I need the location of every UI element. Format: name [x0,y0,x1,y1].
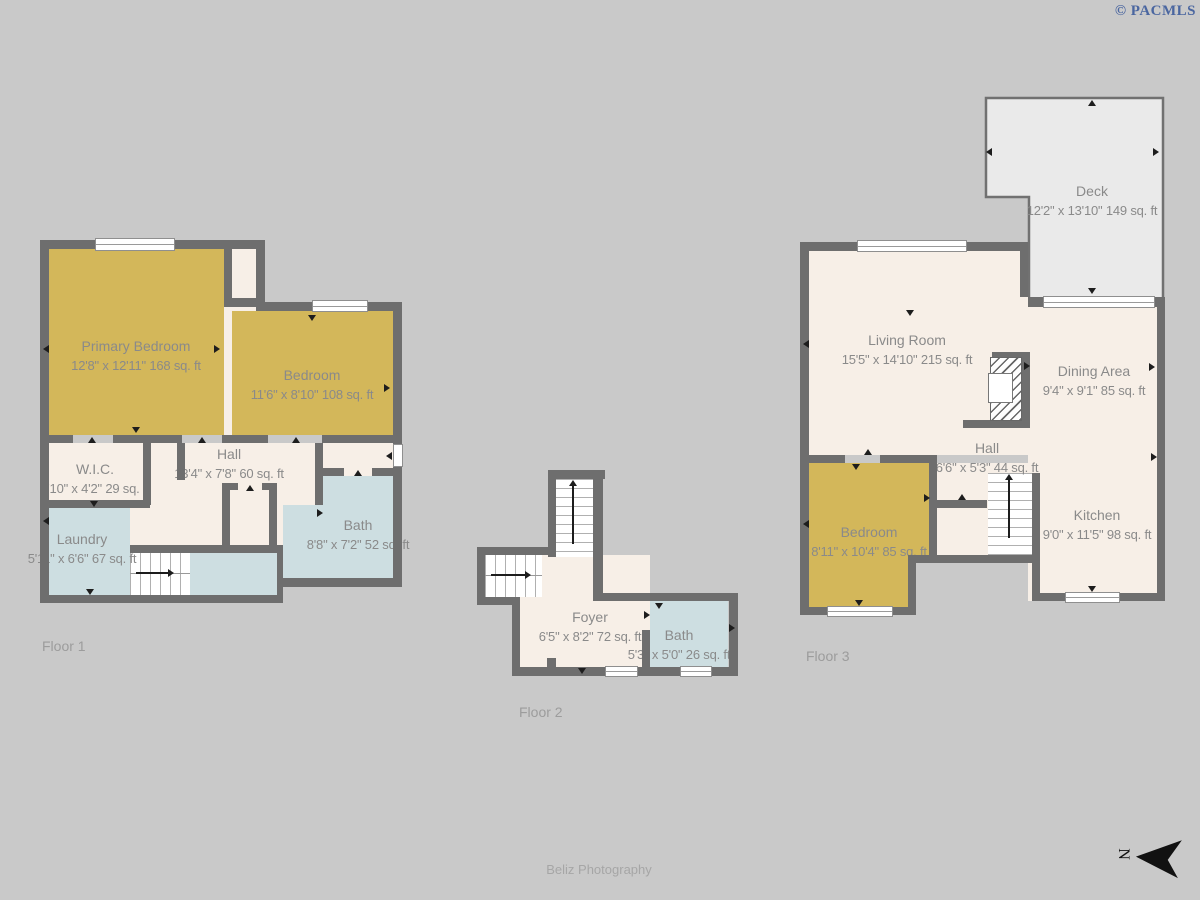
wall [177,443,185,480]
door-tick-icon [1088,100,1096,106]
door-tick-icon [1151,453,1157,461]
wall [372,468,402,476]
wall [222,487,230,552]
wall [937,500,987,508]
room-label: Dining Area 9'4" x 9'1" 85 sq. ft [1043,362,1146,400]
door-opening [393,444,403,467]
door-tick-icon [132,427,140,433]
door-tick-icon [198,437,206,443]
door-tick-icon [308,315,316,321]
door-tick-icon [729,624,735,632]
door-tick-icon [1149,363,1155,371]
room-label: Living Room 15'5" x 14'10" 215 sq. ft [842,331,973,369]
wall [143,443,151,505]
wall [222,435,268,443]
room-label: Foyer 6'5" x 8'2" 72 sq. ft [539,608,642,646]
wall [393,467,402,587]
door-tick-icon [86,589,94,595]
wall [277,553,283,595]
door-tick-icon [292,437,300,443]
door-tick-icon [803,520,809,528]
window [95,238,175,251]
stairs-arrow-head-icon [525,571,531,579]
room-dims: 11'6" x 8'10" 108 sq. ft [251,386,374,404]
wall [929,455,937,563]
wall [593,470,603,601]
room-name: Deck [1027,182,1158,202]
wall [800,242,809,615]
wall [729,593,738,676]
wall [40,595,283,603]
stairs-direction-arrow [572,486,574,544]
window [857,240,967,252]
door-tick-icon [1024,362,1030,370]
wall [322,468,344,476]
window [1065,592,1120,603]
stairs-direction-arrow [136,572,170,574]
door-tick-icon [386,452,392,460]
door-tick-icon [803,340,809,348]
room-label: Hall 13'4" x 7'8" 60 sq. ft [174,445,284,483]
window [827,606,893,617]
door-tick-icon [354,470,362,476]
door-tick-icon [644,611,650,619]
room-dims: 6'10" x 4'2" 29 sq. ft [40,480,150,498]
wall [800,455,845,463]
floor2-label: Floor 2 [519,704,563,720]
room-dims: 9'0" x 11'5" 98 sq. ft [1043,526,1152,544]
window [605,666,638,677]
wall [1020,251,1028,297]
north-arrow-icon [1132,834,1186,881]
door-tick-icon [864,449,872,455]
door-tick-icon [1088,288,1096,294]
door-tick-icon [90,501,98,507]
window [680,666,712,677]
room-name: Bedroom [811,523,927,543]
sliding-door [1043,296,1155,308]
door-tick-icon [88,437,96,443]
room-label: Bedroom 11'6" x 8'10" 108 sq. ft [251,366,374,404]
wall [277,578,402,587]
room-label: Kitchen 9'0" x 11'5" 98 sq. ft [1043,506,1152,544]
stairs [485,555,542,597]
stairs-arrow-head-icon [1005,474,1013,480]
room-label: W.I.C. 6'10" x 4'2" 29 sq. ft [40,460,150,498]
stairs-direction-arrow [1008,480,1010,538]
room-name: Foyer [539,608,642,628]
room-name: Primary Bedroom [71,337,201,357]
door-tick-icon [317,509,323,517]
wall [908,555,1040,563]
bath-area [323,476,393,505]
wall [113,435,182,443]
wall [40,435,73,443]
room-label: Hall 6'6" x 5'3" 44 sq. ft [936,439,1039,477]
wall [1157,307,1165,601]
photographer-credit: Beliz Photography [546,862,652,877]
wall [40,240,49,603]
stairs-direction-arrow [491,574,527,576]
floor1-label: Floor 1 [42,638,86,654]
room-name: W.I.C. [40,460,150,480]
door-tick-icon [855,600,863,606]
wall [603,593,737,601]
wall [512,597,520,676]
room-name: Hall [174,445,284,465]
room-dims: 6'5" x 8'2" 72 sq. ft [539,628,642,646]
door-tick-icon [655,603,663,609]
floor3-label: Floor 3 [806,648,850,664]
fireplace-wall [963,420,1030,428]
room-dims: 12'8" x 12'11" 168 sq. ft [71,357,201,375]
door-tick-icon [986,148,992,156]
wall [477,547,556,555]
stairs-arrow-head-icon [569,480,577,486]
door-tick-icon [1153,148,1159,156]
wall [1032,473,1040,601]
door-tick-icon [43,517,49,525]
stairs [988,473,1032,555]
wall [393,311,402,444]
door-tick-icon [852,464,860,470]
stairs [556,479,593,557]
door-tick-icon [246,485,254,491]
room-name: Kitchen [1043,506,1152,526]
room-label: Deck 12'2" x 13'10" 149 sq. ft [1027,182,1158,220]
window [312,300,368,312]
wall [547,658,556,668]
room-label: Primary Bedroom 12'8" x 12'11" 168 sq. f… [71,337,201,375]
door-tick-icon [384,384,390,392]
fireplace-opening [988,373,1013,403]
room-dims: 6'6" x 5'3" 44 sq. ft [936,459,1039,477]
stairs-arrow-head-icon [168,569,174,577]
pacmls-watermark: © PACMLS [1115,3,1196,20]
door-tick-icon [43,345,49,353]
wall [322,435,402,443]
room-dims: 13'4" x 7'8" 60 sq. ft [174,465,284,483]
room-dims: 12'2" x 13'10" 149 sq. ft [1027,202,1158,220]
wall [130,545,283,553]
room-dims: 15'5" x 14'10" 215 sq. ft [842,351,973,369]
wall [269,487,277,552]
stairs [130,553,190,595]
door-tick-icon [578,668,586,674]
room-name: Living Room [842,331,973,351]
door-tick-icon [958,494,966,500]
door-tick-icon [1088,586,1096,592]
room-name: Bedroom [251,366,374,386]
north-letter: N [1114,848,1132,860]
room-name: Hall [936,439,1039,459]
door-tick-icon [924,494,930,502]
wall [548,470,556,557]
wall [642,630,650,676]
door-tick-icon [906,310,914,316]
room-dims: 9'4" x 9'1" 85 sq. ft [1043,382,1146,400]
room-name: Dining Area [1043,362,1146,382]
door-tick-icon [214,345,220,353]
floorplan-canvas: © PACMLS [0,0,1200,900]
